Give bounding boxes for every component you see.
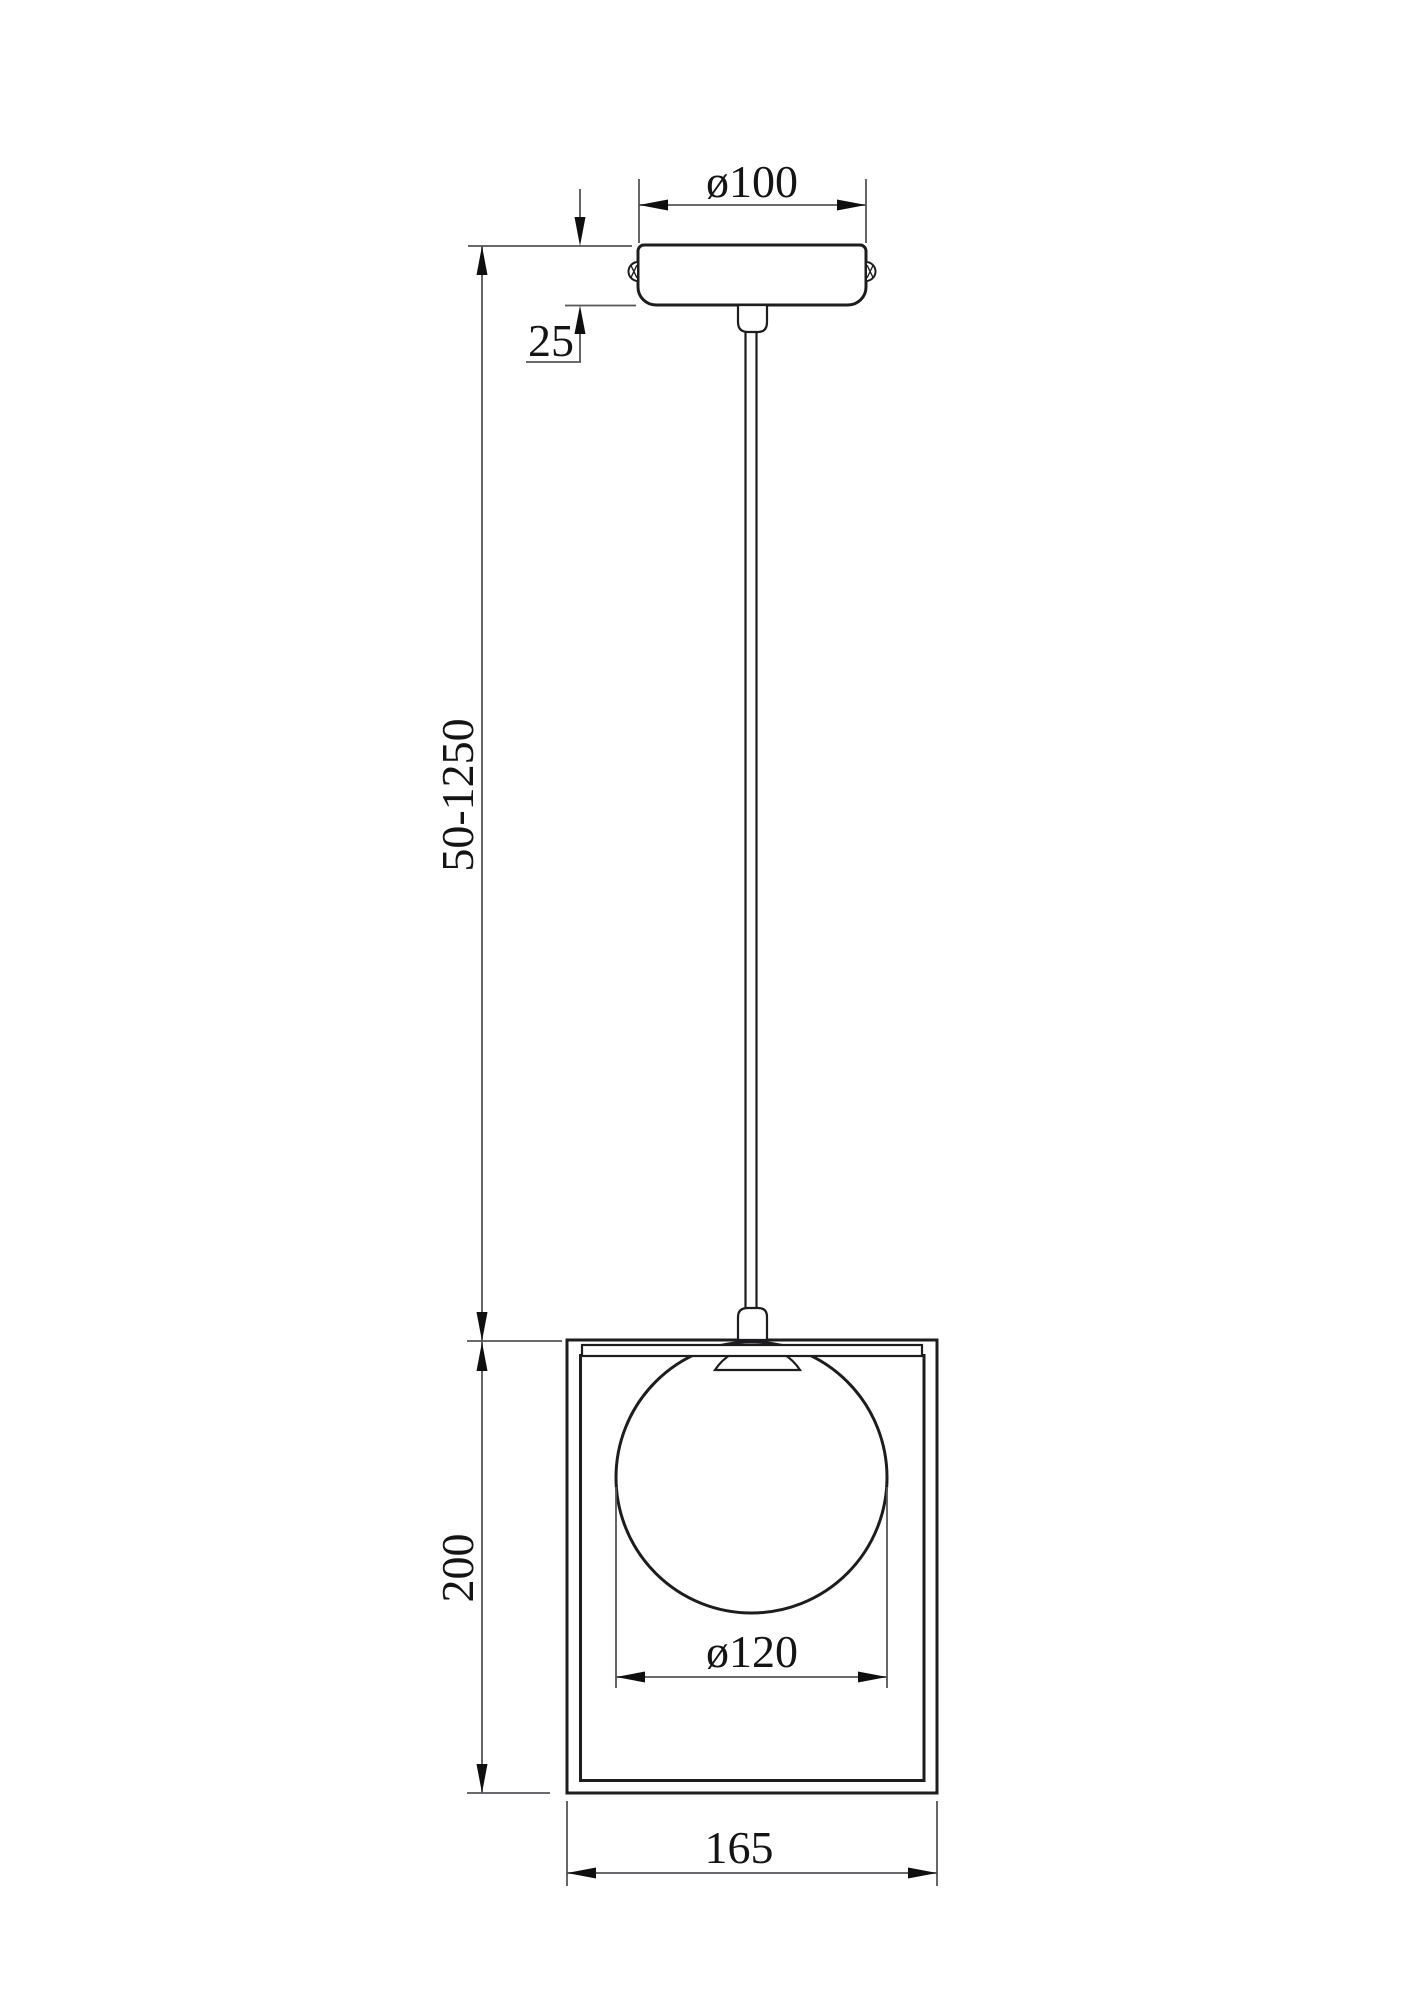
dim-suspension-length: 50-1250: [432, 246, 488, 1341]
dim-label-canopy-diameter: ø100: [706, 156, 798, 207]
dim-arrowhead: [477, 246, 488, 275]
technical-drawing-page: ø100 25 50-1250 200 ø: [0, 0, 1413, 2000]
dim-arrowhead: [567, 1868, 596, 1879]
cord-grip: [738, 305, 767, 332]
dim-arrowhead: [477, 1342, 488, 1371]
dim-label-globe-diameter: ø120: [706, 1626, 798, 1677]
dim-arrowhead: [639, 200, 668, 211]
glass-globe: [616, 1342, 887, 1613]
dim-arrowhead: [908, 1868, 937, 1879]
mounting-screw-left-icon: [629, 262, 639, 281]
dim-canopy-diameter: ø100: [639, 156, 866, 243]
frame-top-plate: [582, 1345, 922, 1356]
dim-canopy-height-reflines: [468, 246, 636, 306]
dim-arrowhead: [837, 200, 866, 211]
suspension-cable: [746, 331, 757, 1309]
lamp-socket: [738, 1308, 767, 1340]
dim-arrowhead: [575, 306, 586, 335]
ceiling-canopy: [638, 245, 866, 305]
dim-canopy-height: 25: [468, 189, 636, 366]
dim-arrowhead: [477, 1312, 488, 1341]
dim-arrowhead: [858, 1672, 887, 1683]
pendant-lamp-dimension-drawing: ø100 25 50-1250 200 ø: [0, 0, 1413, 2000]
dim-arrowhead: [616, 1672, 645, 1683]
dim-label-canopy-height: 25: [528, 315, 574, 366]
dim-label-suspension-length: 50-1250: [432, 718, 483, 871]
dim-label-frame-height: 200: [432, 1534, 483, 1603]
mounting-screw-right-icon: [866, 262, 876, 281]
dim-frame-height: 200: [432, 1341, 562, 1793]
dim-frame-width: 165: [567, 1801, 937, 1886]
dim-arrowhead: [575, 217, 586, 246]
dim-arrowhead: [477, 1764, 488, 1793]
dim-label-frame-width: 165: [705, 1822, 774, 1873]
